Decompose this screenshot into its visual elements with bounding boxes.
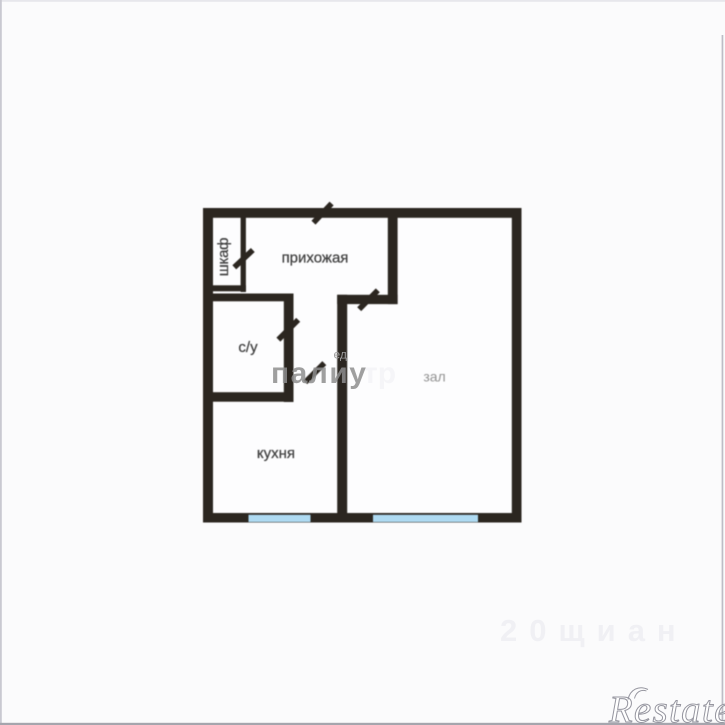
svg-text:тр: тр: [363, 357, 396, 390]
svg-text:палиу: палиу: [271, 357, 368, 390]
svg-text:кухня: кухня: [257, 445, 295, 462]
svg-text:Restate: Restate: [608, 689, 725, 725]
svg-text:с/у: с/у: [238, 339, 258, 356]
svg-text:прихожая: прихожая: [282, 250, 349, 267]
svg-text:шкаф: шкаф: [215, 238, 232, 276]
svg-text:20щиан: 20щиан: [500, 613, 688, 648]
svg-text:зал: зал: [423, 369, 445, 385]
